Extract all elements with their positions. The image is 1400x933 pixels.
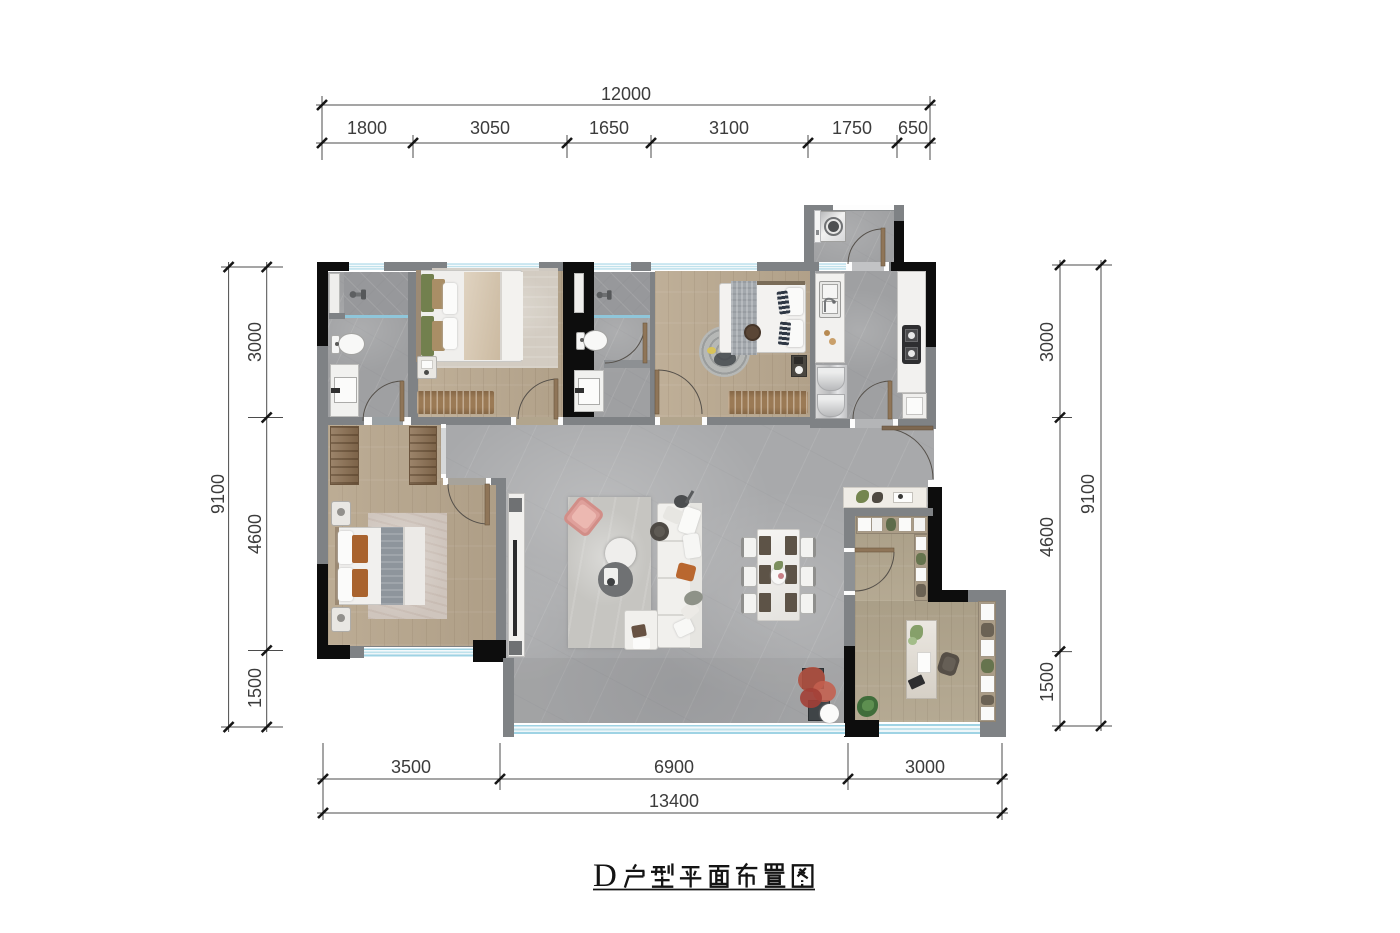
svg-text:1500: 1500 bbox=[245, 668, 265, 708]
svg-text:13400: 13400 bbox=[649, 791, 699, 811]
svg-text:12000: 12000 bbox=[601, 84, 651, 104]
svg-text:3000: 3000 bbox=[245, 322, 265, 362]
svg-text:4600: 4600 bbox=[1037, 517, 1057, 557]
svg-text:1500: 1500 bbox=[1037, 662, 1057, 702]
svg-text:1800: 1800 bbox=[347, 118, 387, 138]
svg-text:9100: 9100 bbox=[208, 474, 228, 514]
svg-text:650: 650 bbox=[898, 118, 928, 138]
svg-text:1750: 1750 bbox=[832, 118, 872, 138]
svg-text:3050: 3050 bbox=[470, 118, 510, 138]
svg-text:9100: 9100 bbox=[1078, 474, 1098, 514]
svg-text:3000: 3000 bbox=[1037, 322, 1057, 362]
svg-text:4600: 4600 bbox=[245, 514, 265, 554]
svg-text:3500: 3500 bbox=[391, 757, 431, 777]
svg-text:3000: 3000 bbox=[905, 757, 945, 777]
svg-text:6900: 6900 bbox=[654, 757, 694, 777]
svg-text:3100: 3100 bbox=[709, 118, 749, 138]
svg-text:1650: 1650 bbox=[589, 118, 629, 138]
svg-text:D: D bbox=[593, 858, 617, 894]
